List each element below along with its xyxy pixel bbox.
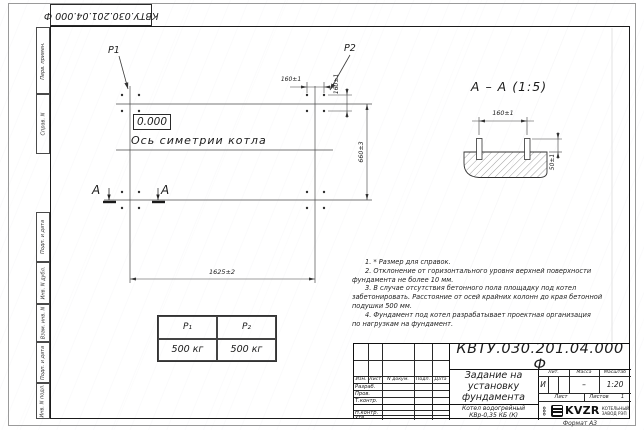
tb-sheet-label: Лист bbox=[538, 393, 584, 401]
margin-label: Подп. и дата bbox=[40, 345, 46, 379]
blueprint-page: КВТУ.030.201.04.000 Ф Перв. примен. Спра… bbox=[0, 0, 644, 430]
tb-product: Котел водогрейный КВр-0,35 КБ (К) bbox=[449, 404, 538, 420]
tb-logo-cell: ООО KVZR КОТЕЛЬНЫЙ ЗАВОД РЭП bbox=[538, 401, 631, 420]
company-line: КОТЕЛЬНЫЙ bbox=[602, 406, 629, 411]
margin-box-perv-primen: Перв. примен. bbox=[36, 27, 50, 94]
title-block: Изм. Лист N докум. Подп. Дата Разраб. Пр… bbox=[353, 343, 630, 419]
load-table-header-p1: Р₁ bbox=[158, 316, 217, 339]
dim-660-label: 660±3 bbox=[357, 137, 365, 167]
margin-label: Перв. примен. bbox=[40, 42, 46, 80]
tb-designation: КВТУ.030.201.04.000 Ф bbox=[449, 344, 631, 369]
note-line: забетонировать. Расстояние от осей крайн… bbox=[352, 293, 632, 302]
note-line: 2. Отклонение от горизонтального уровня … bbox=[352, 267, 632, 276]
margin-box-inv-dubl: Инв. N дубл. bbox=[36, 262, 50, 304]
margin-label: Справ. N bbox=[40, 113, 46, 136]
tb-scale-value: 1:20 bbox=[599, 376, 631, 393]
dim-section-50-label: 50±1 bbox=[548, 148, 556, 176]
dim-160-h-label: 160±1 bbox=[277, 76, 305, 83]
tb-sheets-value: 1 bbox=[614, 393, 631, 401]
rotated-designation-stamp: КВТУ.030.201.04.000 Ф bbox=[50, 4, 152, 26]
tb-doc-title-line: установку bbox=[468, 381, 519, 392]
dim-section-160-label: 160±1 bbox=[481, 110, 525, 117]
margin-box-vzam-inv: Взам. инв. N bbox=[36, 304, 50, 342]
note-line: 1. * Размер для справок. bbox=[352, 258, 632, 267]
tb-doc-title: Задание на установку фундамента bbox=[449, 369, 538, 404]
note-line: 4. Фундамент под котел разрабатывает про… bbox=[352, 311, 632, 320]
dim-1625-label: 1625±2 bbox=[200, 268, 244, 276]
tb-col-izm: Изм. bbox=[354, 376, 368, 383]
dim-160-v-label: 160±1 bbox=[332, 70, 340, 98]
margin-label: Инв. N дубл. bbox=[40, 267, 46, 300]
margin-box-podp-data-2: Подп. и дата bbox=[36, 342, 50, 383]
note-line: подушки 500 мм. bbox=[352, 302, 632, 311]
note-line: фундамента не более 10 мм. bbox=[352, 276, 632, 285]
technical-notes: 1. * Размер для справок. 2. Отклонение о… bbox=[352, 258, 632, 328]
note-line: 3. В случае отсутствия бетонного пола пл… bbox=[352, 284, 632, 293]
kvzr-logo-text: KVZR bbox=[565, 404, 600, 417]
format-note: Формат А3 bbox=[548, 419, 612, 428]
margin-box-inv-podl: Инв. N подл. bbox=[36, 383, 50, 419]
section-letter-left: А bbox=[92, 183, 100, 197]
rotated-designation-text: КВТУ.030.201.04.000 Ф bbox=[44, 10, 159, 21]
elevation-mark: 0.000 bbox=[133, 114, 171, 130]
tb-col-list: Лист bbox=[368, 376, 382, 383]
kvzr-emblem-icon bbox=[551, 405, 563, 417]
tb-mass-label: Масса bbox=[569, 369, 599, 376]
load-table-value-p2: 500 кг bbox=[217, 339, 276, 362]
margin-label: Взам. инв. N bbox=[40, 307, 46, 340]
tb-doc-title-line: фундамента bbox=[462, 392, 525, 403]
load-table-value-p1: 500 кг bbox=[158, 339, 217, 362]
tb-sheets-label: Листов bbox=[584, 393, 614, 401]
tb-col-podp: Подп. bbox=[414, 376, 432, 383]
tb-row-razrab: Разраб. bbox=[355, 383, 382, 390]
tb-lit-value: И bbox=[538, 376, 548, 393]
tb-mass-value: – bbox=[569, 376, 599, 393]
tb-product-line: Котел водогрейный bbox=[462, 405, 525, 412]
section-title: А – А (1:5) bbox=[454, 79, 564, 94]
margin-box-podp-data-1: Подп. и дата bbox=[36, 212, 50, 262]
note-line: по нагрузкам на фундамент. bbox=[352, 320, 632, 329]
company-line: ЗАВОД РЭП bbox=[602, 411, 629, 416]
tb-row-tkontr: Т.контр. bbox=[355, 397, 382, 404]
tb-scale-label: Масштаб bbox=[599, 369, 631, 376]
margin-label: Инв. N подл. bbox=[40, 384, 46, 417]
tb-product-line: КВр-0,35 КБ (К) bbox=[469, 412, 518, 419]
tb-row-prov: Пров. bbox=[355, 390, 382, 397]
logo-ooo-text: ООО bbox=[542, 406, 546, 415]
tb-col-data: Дата bbox=[432, 376, 449, 383]
tb-doc-title-line: Задание на bbox=[465, 370, 523, 381]
load-table: Р₁ Р₂ 500 кг 500 кг bbox=[157, 315, 277, 362]
company-name: КОТЕЛЬНЫЙ ЗАВОД РЭП bbox=[602, 406, 629, 416]
section-letter-right: А bbox=[161, 183, 169, 197]
load-table-header-p2: Р₂ bbox=[217, 316, 276, 339]
p1-label: Р1 bbox=[108, 45, 120, 56]
margin-label: Подп. и дата bbox=[40, 220, 46, 254]
tb-col-ndokum: N докум. bbox=[382, 376, 414, 383]
boiler-axis-label: Ось симетрии котла bbox=[131, 134, 267, 147]
p2-label: Р2 bbox=[344, 43, 356, 54]
margin-box-sprav-n: Справ. N bbox=[36, 94, 50, 154]
tb-row-utv: Утв. bbox=[355, 415, 382, 420]
tb-lit-label: Лит. bbox=[538, 369, 569, 376]
